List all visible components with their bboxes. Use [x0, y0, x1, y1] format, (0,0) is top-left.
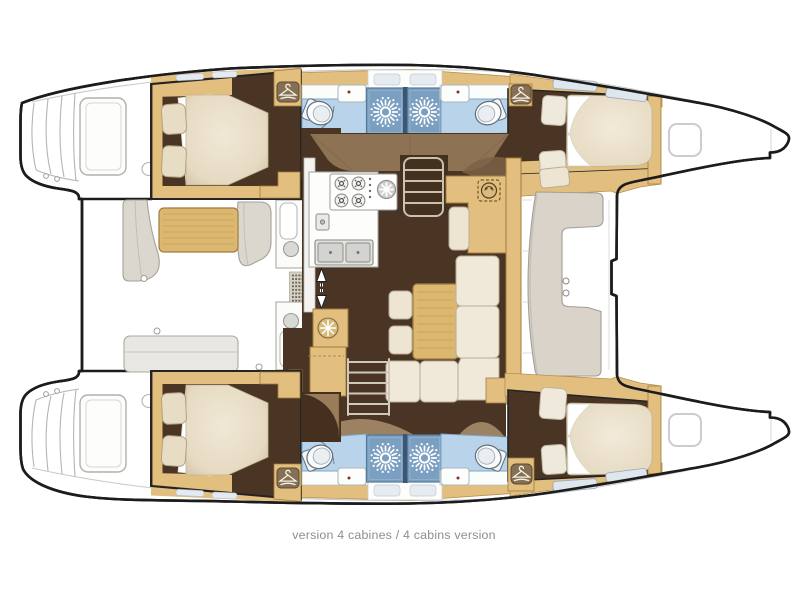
svg-text:version 4 cabines / 4 cabins v: version 4 cabines / 4 cabins version: [292, 528, 496, 542]
